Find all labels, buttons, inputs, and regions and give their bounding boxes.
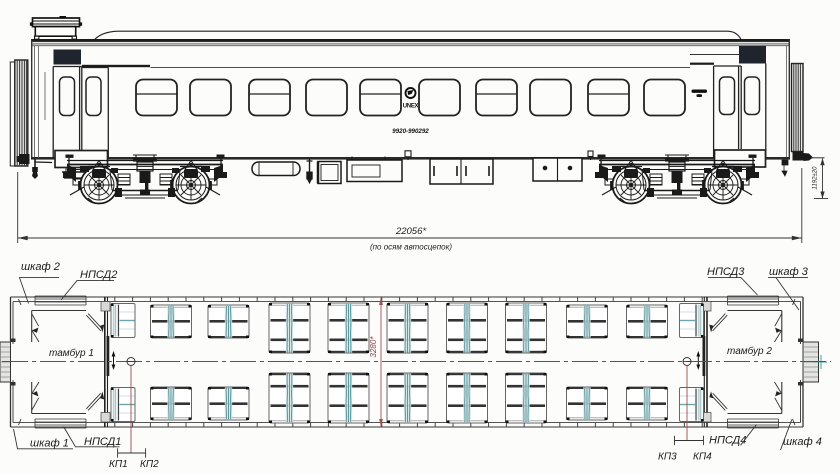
svg-text:НПСД2: НПСД2 [80, 269, 117, 281]
svg-text:шкаф 4: шкаф 4 [783, 436, 822, 448]
svg-text:шкаф 1: шкаф 1 [30, 438, 69, 450]
svg-text:шкаф 3: шкаф 3 [769, 266, 809, 278]
svg-text:КП4: КП4 [693, 452, 712, 463]
svg-text:НПСД3: НПСД3 [707, 266, 745, 278]
svg-text:КП2: КП2 [140, 459, 159, 470]
svg-text:тамбур 1: тамбур 1 [49, 347, 94, 359]
svg-text:UNEX: UNEX [403, 104, 419, 110]
svg-text:КП3: КП3 [658, 452, 677, 463]
svg-text:(по осям автосцепок): (по осям автосцепок) [370, 243, 452, 252]
svg-text:3280*: 3280* [369, 336, 378, 358]
svg-text:НПСД1: НПСД1 [84, 436, 121, 448]
svg-text:шкаф 2: шкаф 2 [21, 261, 60, 273]
svg-text:тамбур 2: тамбур 2 [727, 345, 772, 357]
svg-text:КП1: КП1 [109, 459, 128, 470]
svg-text:22056*: 22056* [395, 226, 426, 237]
svg-text:1192±20: 1192±20 [813, 166, 819, 190]
svg-text:9920-990292: 9920-990292 [392, 128, 429, 135]
